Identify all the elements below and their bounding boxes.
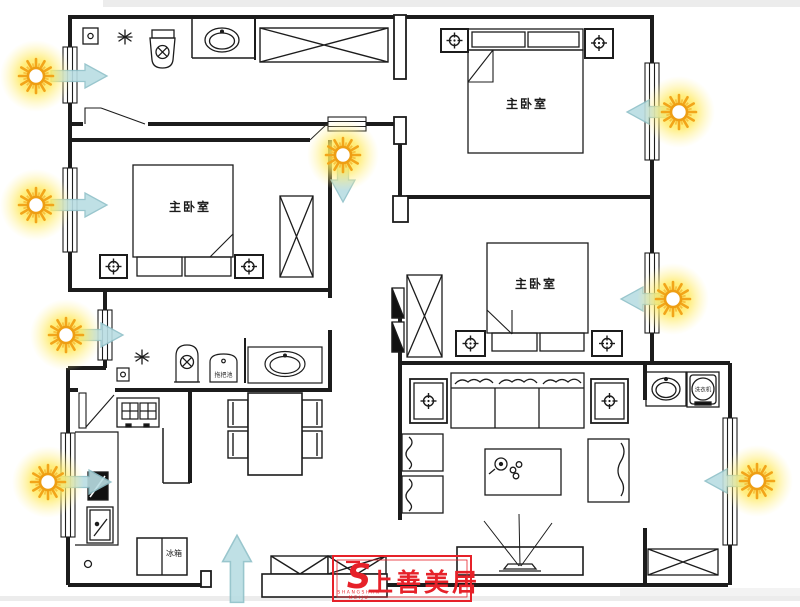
sofa-pillow (543, 379, 581, 384)
floorplan-drawing: 主卧室 主卧室 主卧室 拖把池 (0, 0, 800, 607)
laundry-balcony: 洗衣机 (646, 372, 719, 575)
vent-icon (118, 30, 132, 44)
sun-icon (12, 446, 84, 518)
burner-icon (122, 403, 138, 419)
hall-closet (260, 28, 388, 62)
chair-pillow (406, 437, 412, 469)
lamp-icon (421, 393, 437, 409)
lamp-icon (106, 259, 122, 275)
blanket-fold (210, 234, 233, 257)
sun-icon (643, 76, 715, 148)
dining-table (248, 393, 302, 475)
chair-pillow (406, 479, 412, 511)
sofa-pillow (499, 379, 537, 384)
room-label: 主卧室 (506, 96, 548, 111)
chair-pillow (618, 443, 624, 496)
burner-icon (140, 403, 156, 419)
lamp-icon (591, 35, 607, 51)
fridge: 冰箱 (137, 538, 187, 575)
door-swing (85, 108, 145, 124)
dining-area (228, 393, 322, 475)
door-swing (86, 395, 114, 427)
sink-icon (248, 347, 322, 383)
toilet-icon (174, 345, 200, 382)
armchair (588, 439, 629, 502)
sun-icon (30, 299, 102, 371)
sun-icon (637, 263, 709, 335)
logo-caption-bottom: MEIJU (349, 595, 370, 601)
room-label: 主卧室 (169, 199, 211, 214)
washer-label: 洗衣机 (695, 386, 712, 394)
room-label: 主卧室 (515, 276, 557, 291)
floor-plan: 主卧室 主卧室 主卧室 拖把池 (0, 0, 800, 607)
bedroom-east: 主卧室 (392, 243, 622, 357)
tv-stand (457, 514, 583, 575)
stove (117, 398, 159, 427)
wall-unit (392, 322, 404, 352)
blanket-fold (468, 50, 493, 82)
wall-unit (392, 288, 404, 318)
top-gray-band (103, 0, 800, 7)
lamp-icon (241, 259, 257, 275)
mop-sink: 拖把池 (210, 354, 237, 382)
wall-end-caps (201, 15, 408, 587)
sink-icon (205, 28, 239, 52)
coffee-table (485, 449, 561, 495)
entry-arrow-icon (223, 535, 252, 602)
logo-brand-name: 上善美居 (368, 568, 480, 597)
armchair (402, 476, 443, 513)
bathroom-central: 拖把池 (117, 345, 322, 383)
lamp-icon (463, 336, 479, 352)
washing-machine: 洗衣机 (687, 372, 719, 407)
living-room (402, 373, 629, 575)
toilet-icon (150, 30, 175, 68)
end-table (591, 379, 628, 423)
bottom-right-band (620, 588, 800, 597)
sofa (451, 373, 584, 428)
sun-icon (307, 119, 379, 191)
sun-icon (0, 40, 72, 112)
lamp-icon (599, 336, 615, 352)
sun-icon (0, 169, 72, 241)
fridge-label: 冰箱 (166, 548, 182, 558)
sun-icon (721, 445, 793, 517)
bedroom-west: 主卧室 (100, 123, 328, 278)
brand-logo: S SHANGSHAN MEIJU 上善美居 (333, 556, 480, 601)
floor-drain (85, 561, 92, 568)
armchair (402, 434, 443, 471)
lamp-icon (602, 393, 618, 409)
kitchen-sink (87, 507, 113, 543)
sofa-pillow (455, 379, 493, 384)
bedroom-northeast: 主卧室 (441, 29, 613, 153)
lamp-icon (447, 33, 463, 49)
blanket-fold (487, 310, 512, 334)
mop-sink-label: 拖把池 (214, 371, 232, 379)
end-table (410, 379, 447, 423)
vent-icon (135, 350, 149, 364)
